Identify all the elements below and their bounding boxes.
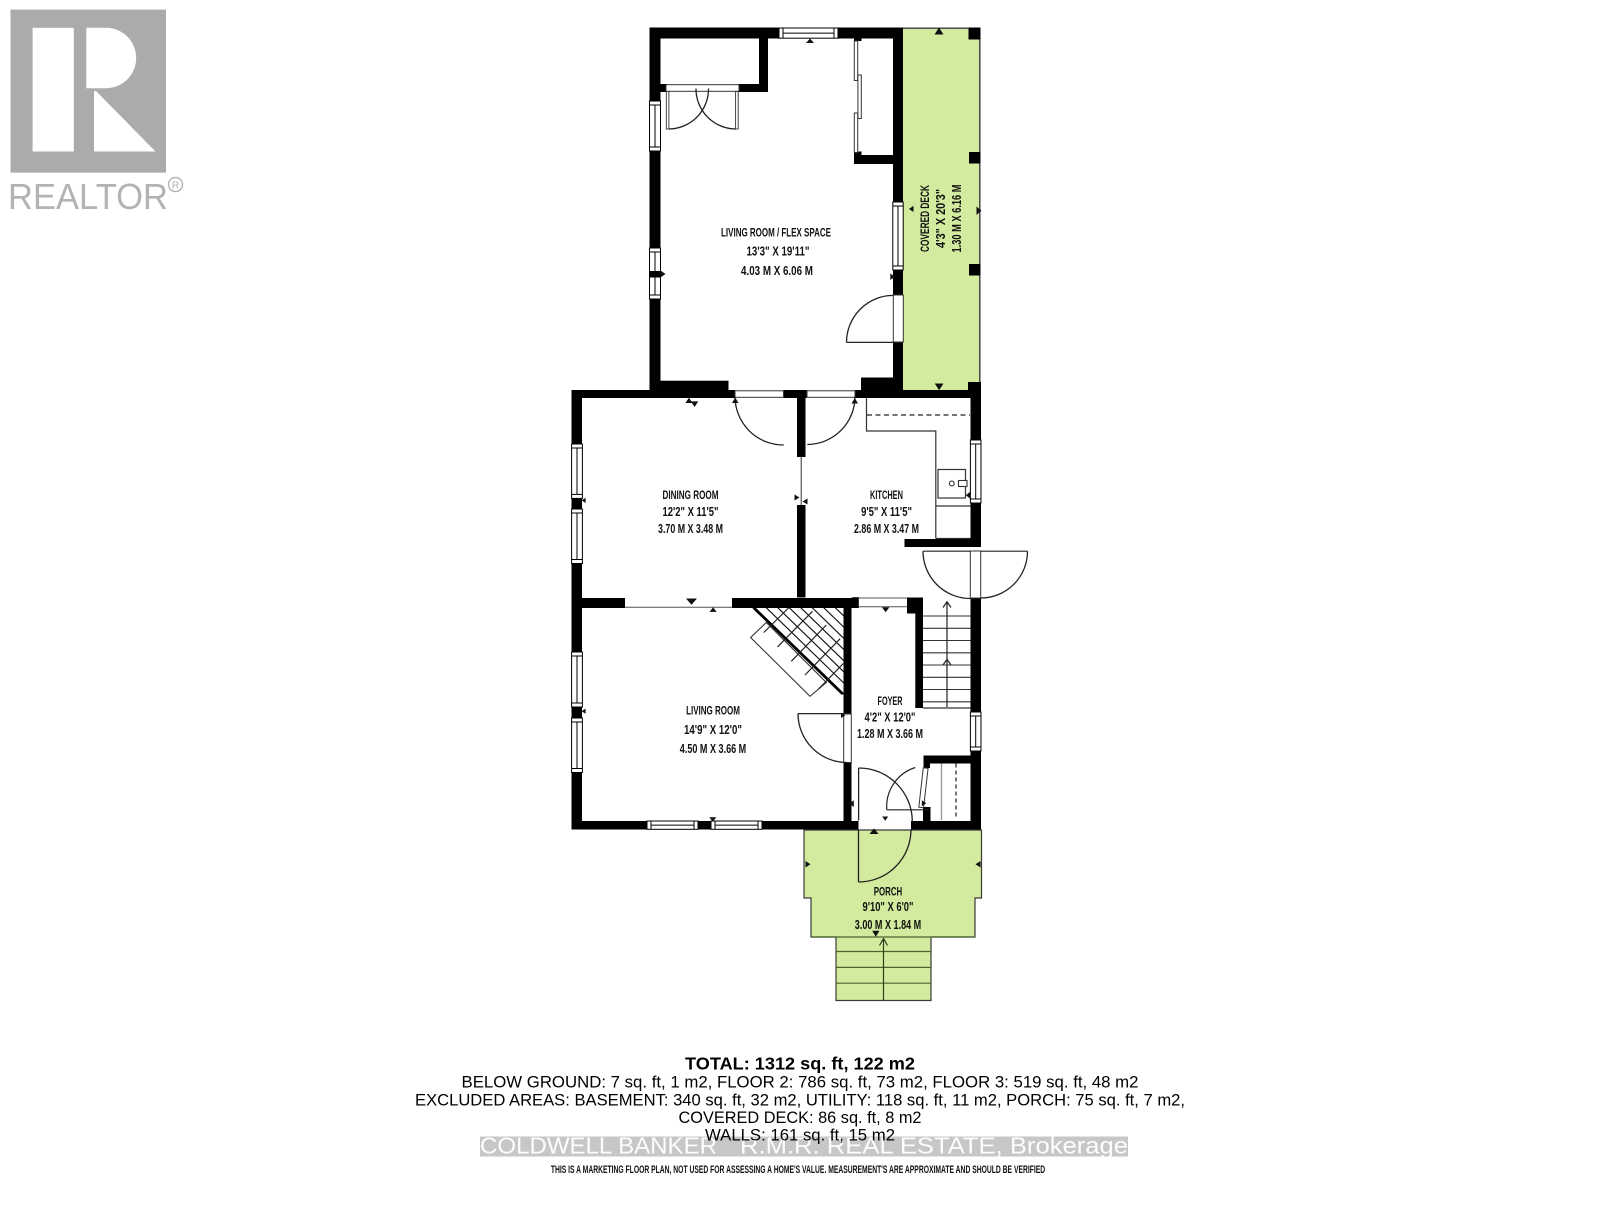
svg-text:12'2" X 11'5": 12'2" X 11'5" [662, 506, 718, 520]
svg-text:LIVING ROOM: LIVING ROOM [686, 705, 740, 718]
svg-text:BELOW GROUND: 7 sq. ft, 1 m2,: BELOW GROUND: 7 sq. ft, 1 m2, FLOOR 2: 7… [462, 1073, 1139, 1092]
svg-text:LIVING ROOM / FLEX SPACE: LIVING ROOM / FLEX SPACE [721, 227, 831, 240]
svg-text:COLDWELL BANKER: COLDWELL BANKER [480, 1133, 717, 1159]
svg-text:TOTAL: 1312 sq. ft, 122 m2: TOTAL: 1312 sq. ft, 122 m2 [685, 1054, 915, 1074]
svg-text:4'3" X 20'3": 4'3" X 20'3" [934, 189, 948, 248]
svg-text:4.50 M X 3.66 M: 4.50 M X 3.66 M [680, 743, 746, 757]
svg-text:4.03 M X 6.06 M: 4.03 M X 6.06 M [741, 265, 813, 278]
svg-text:14'9" X 12'0": 14'9" X 12'0" [684, 724, 742, 737]
svg-text:R: R [172, 180, 179, 191]
svg-text:WALLS: 161 sq. ft, 15 m2: WALLS: 161 sq. ft, 15 m2 [705, 1126, 895, 1145]
svg-text:2.86 M X 3.47 M: 2.86 M X 3.47 M [854, 522, 919, 536]
svg-text:FOYER: FOYER [878, 695, 903, 708]
svg-text:9'5" X 11'5": 9'5" X 11'5" [861, 506, 912, 520]
svg-text:COVERED DECK: COVERED DECK [920, 185, 933, 252]
svg-text:13'3" X 19'11": 13'3" X 19'11" [747, 245, 810, 258]
svg-text:REALTOR: REALTOR [8, 176, 168, 217]
svg-text:1.28 M X 3.66 M: 1.28 M X 3.66 M [857, 728, 923, 742]
svg-text:4'2" X 12'0": 4'2" X 12'0" [865, 711, 916, 725]
svg-text:1.30 M X 6.16 M: 1.30 M X 6.16 M [951, 184, 965, 252]
svg-text:3.00 M X 1.84 M: 3.00 M X 1.84 M [855, 919, 921, 933]
svg-text:9'10" X 6'0": 9'10" X 6'0" [863, 901, 914, 915]
svg-text:KITCHEN: KITCHEN [870, 489, 903, 502]
svg-text:DINING ROOM: DINING ROOM [663, 490, 719, 503]
svg-text:3.70 M X 3.48 M: 3.70 M X 3.48 M [658, 522, 723, 536]
svg-text:THIS IS A MARKETING FLOOR PLAN: THIS IS A MARKETING FLOOR PLAN, NOT USED… [551, 1163, 1046, 1175]
svg-text:EXCLUDED AREAS: BASEMENT: 340: EXCLUDED AREAS: BASEMENT: 340 sq. ft, 32… [415, 1091, 1185, 1110]
svg-text:PORCH: PORCH [874, 886, 902, 899]
svg-text:COVERED DECK: 86 sq. ft, 8 m2: COVERED DECK: 86 sq. ft, 8 m2 [679, 1108, 922, 1127]
